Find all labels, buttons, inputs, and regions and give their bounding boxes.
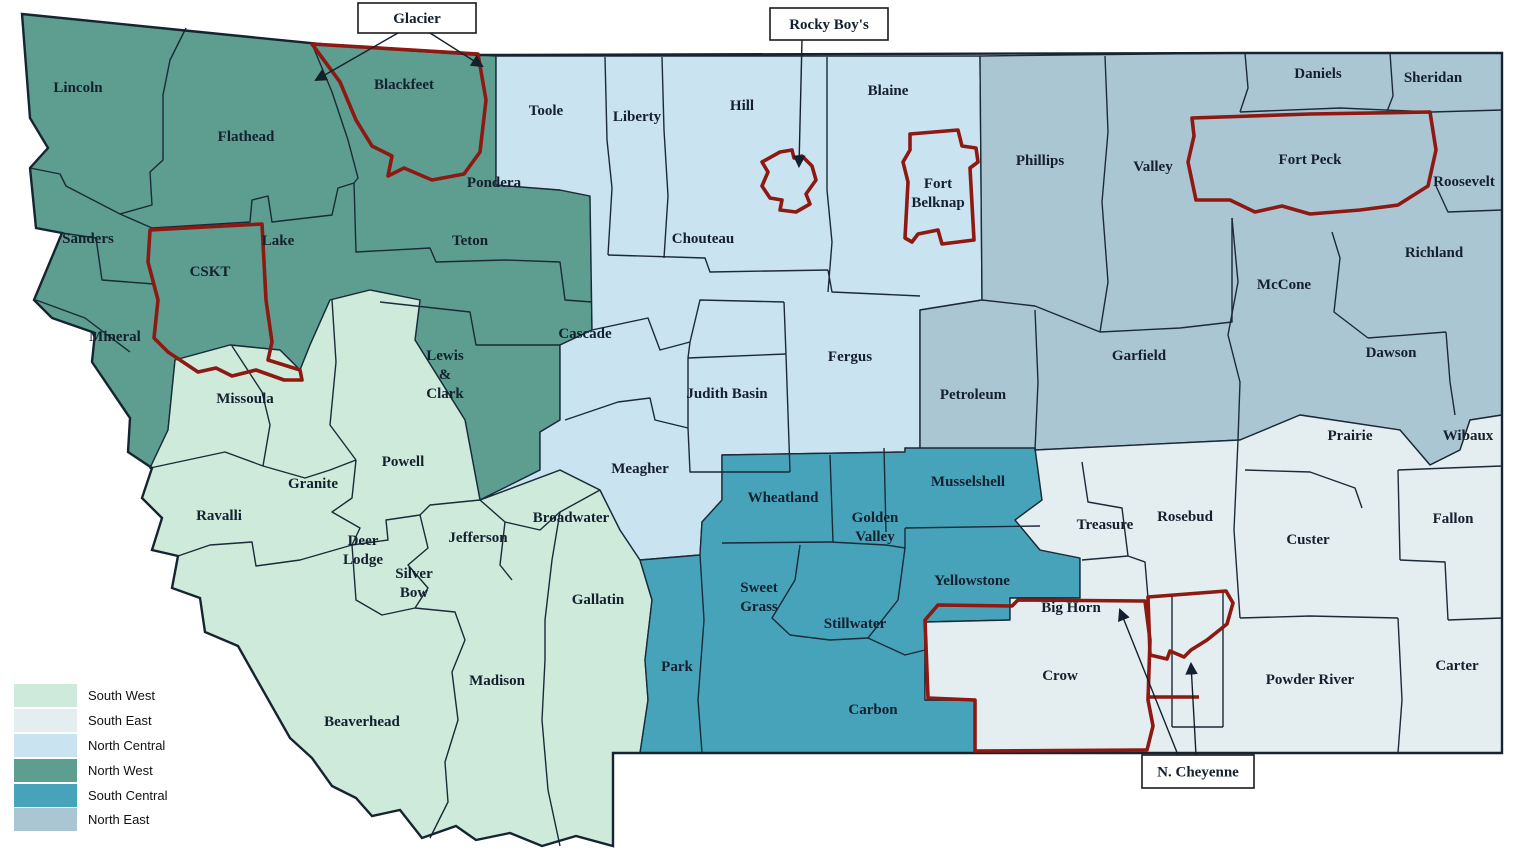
- label-line: Meagher: [611, 461, 669, 477]
- county-label-ravalli: Ravalli: [196, 508, 242, 524]
- label-line: Carbon: [848, 702, 898, 718]
- county-label-wheatland: Wheatland: [748, 490, 820, 506]
- county-label-mineral: Mineral: [89, 329, 141, 345]
- reservation-label-fort-peck: Fort Peck: [1279, 152, 1343, 168]
- label-line: &: [439, 367, 452, 383]
- label-line: Fallon: [1433, 511, 1474, 527]
- label-line: Liberty: [613, 109, 662, 125]
- label-line: Roosevelt: [1433, 174, 1495, 190]
- county-label-phillips: Phillips: [1016, 153, 1065, 169]
- label-line: Belknap: [911, 195, 964, 211]
- label-line: Flathead: [218, 129, 275, 145]
- legend-label: South West: [88, 688, 155, 703]
- county-label-sheridan: Sheridan: [1404, 70, 1463, 86]
- label-line: CSKT: [190, 264, 231, 280]
- label-line: Stillwater: [824, 616, 887, 632]
- legend-label: South East: [88, 713, 152, 728]
- legend-label: South Central: [88, 788, 168, 803]
- county-border-line: [722, 542, 830, 543]
- label-line: Fort: [924, 176, 952, 192]
- county-label-treasure: Treasure: [1077, 517, 1134, 533]
- legend-swatch-south-central: [14, 784, 77, 807]
- label-line: Valley: [855, 529, 895, 545]
- label-line: Powell: [382, 454, 425, 470]
- label-line: Sheridan: [1404, 70, 1463, 86]
- label-line: Dawson: [1366, 345, 1418, 361]
- label-line: Silver: [395, 566, 433, 582]
- county-label-powell: Powell: [382, 454, 425, 470]
- county-label-carbon: Carbon: [848, 702, 898, 718]
- county-label-jefferson: Jefferson: [448, 530, 508, 546]
- legend-swatch-north-east: [14, 808, 77, 831]
- county-label-mccone: McCone: [1257, 277, 1311, 293]
- label-line: Deer: [348, 533, 379, 549]
- callout-label: Glacier: [393, 11, 441, 27]
- county-label-daniels: Daniels: [1294, 66, 1342, 82]
- legend-item: North Central: [14, 734, 165, 757]
- county-label-richland: Richland: [1405, 245, 1464, 261]
- label-line: Golden: [852, 510, 899, 526]
- label-line: Richland: [1405, 245, 1464, 261]
- county-label-fergus: Fergus: [828, 349, 872, 365]
- county-label-blaine: Blaine: [868, 83, 909, 99]
- county-label-beaverhead: Beaverhead: [324, 714, 400, 730]
- county-label-judith-basin: Judith Basin: [686, 386, 768, 402]
- county-label-rosebud: Rosebud: [1157, 509, 1214, 525]
- reservation-label-blackfeet: Blackfeet: [374, 77, 434, 93]
- label-line: Fort Peck: [1279, 152, 1343, 168]
- map-canvas: LincolnFlatheadSandersLakeMineralPondera…: [0, 0, 1516, 853]
- label-line: Wheatland: [748, 490, 820, 506]
- county-label-toole: Toole: [529, 103, 564, 119]
- label-line: Petroleum: [940, 387, 1007, 403]
- reservation-label-cskt: CSKT: [190, 264, 231, 280]
- legend-item: South Central: [14, 784, 168, 807]
- label-line: Sanders: [62, 231, 114, 247]
- label-line: Treasure: [1077, 517, 1134, 533]
- label-line: Park: [661, 659, 693, 675]
- label-line: Carter: [1435, 658, 1479, 674]
- label-line: Gallatin: [572, 592, 625, 608]
- label-line: Lodge: [343, 552, 383, 568]
- montana-regions-map: LincolnFlatheadSandersLakeMineralPondera…: [0, 0, 1516, 853]
- county-label-fallon: Fallon: [1433, 511, 1474, 527]
- county-label-flathead: Flathead: [218, 129, 275, 145]
- label-line: Hill: [730, 98, 754, 114]
- county-label-madison: Madison: [469, 673, 526, 689]
- county-label-pondera: Pondera: [467, 175, 522, 191]
- label-line: Powder River: [1266, 672, 1355, 688]
- reservation-label-crow: Crow: [1042, 668, 1078, 684]
- county-label-teton: Teton: [452, 233, 489, 249]
- label-line: Teton: [452, 233, 489, 249]
- county-label-meagher: Meagher: [611, 461, 669, 477]
- legend-item: North West: [14, 759, 153, 782]
- county-label-park: Park: [661, 659, 693, 675]
- county-label-lincoln: Lincoln: [53, 80, 103, 96]
- county-label-liberty: Liberty: [613, 109, 662, 125]
- label-line: Custer: [1286, 532, 1330, 548]
- county-label-chouteau: Chouteau: [672, 231, 735, 247]
- label-line: McCone: [1257, 277, 1311, 293]
- label-line: Lincoln: [53, 80, 103, 96]
- county-label-roosevelt: Roosevelt: [1433, 174, 1495, 190]
- county-label-gallatin: Gallatin: [572, 592, 625, 608]
- legend-swatch-south-west: [14, 684, 77, 707]
- label-line: Lewis: [426, 348, 464, 364]
- label-line: Mineral: [89, 329, 141, 345]
- legend-label: North Central: [88, 738, 165, 753]
- label-line: Beaverhead: [324, 714, 400, 730]
- county-label-valley: Valley: [1133, 159, 1173, 175]
- label-line: Wibaux: [1443, 428, 1494, 444]
- label-line: Cascade: [558, 326, 612, 342]
- label-line: Broadwater: [533, 510, 610, 526]
- label-line: Big Horn: [1041, 600, 1101, 616]
- county-label-hill: Hill: [730, 98, 754, 114]
- county-label-petroleum: Petroleum: [940, 387, 1007, 403]
- label-line: Crow: [1042, 668, 1078, 684]
- county-label-stillwater: Stillwater: [824, 616, 887, 632]
- label-line: Grass: [740, 599, 778, 615]
- label-line: Blackfeet: [374, 77, 434, 93]
- label-line: Madison: [469, 673, 526, 689]
- county-label-dawson: Dawson: [1366, 345, 1418, 361]
- legend-label: North East: [88, 812, 150, 827]
- legend-swatch-north-central: [14, 734, 77, 757]
- county-label-yellowstone: Yellowstone: [934, 573, 1010, 589]
- label-line: Musselshell: [931, 474, 1005, 490]
- county-label-granite: Granite: [288, 476, 338, 492]
- label-line: Ravalli: [196, 508, 242, 524]
- label-line: Toole: [529, 103, 564, 119]
- county-label-garfield: Garfield: [1112, 348, 1167, 364]
- callout-label: N. Cheyenne: [1157, 765, 1239, 781]
- label-line: Prairie: [1328, 428, 1373, 444]
- label-line: Phillips: [1016, 153, 1065, 169]
- label-line: Rosebud: [1157, 509, 1214, 525]
- label-line: Clark: [426, 386, 464, 402]
- label-line: Yellowstone: [934, 573, 1010, 589]
- legend-item: North East: [14, 808, 150, 831]
- county-label-big-horn: Big Horn: [1041, 600, 1101, 616]
- label-line: Fergus: [828, 349, 872, 365]
- legend-label: North West: [88, 763, 153, 778]
- label-line: Granite: [288, 476, 338, 492]
- legend-item: South East: [14, 709, 152, 732]
- county-label-custer: Custer: [1286, 532, 1330, 548]
- legend-swatch-south-east: [14, 709, 77, 732]
- county-label-lake: Lake: [262, 233, 295, 249]
- label-line: Lake: [262, 233, 295, 249]
- label-line: Chouteau: [672, 231, 735, 247]
- county-label-powder-river: Powder River: [1266, 672, 1355, 688]
- county-label-wibaux: Wibaux: [1443, 428, 1494, 444]
- label-line: Blaine: [868, 83, 909, 99]
- callout-label: Rocky Boy's: [789, 17, 869, 33]
- label-line: Daniels: [1294, 66, 1342, 82]
- county-label-musselshell: Musselshell: [931, 474, 1005, 490]
- label-line: Sweet: [740, 580, 778, 596]
- county-label-sanders: Sanders: [62, 231, 114, 247]
- county-label-prairie: Prairie: [1328, 428, 1373, 444]
- label-line: Valley: [1133, 159, 1173, 175]
- label-line: Pondera: [467, 175, 522, 191]
- label-line: Missoula: [216, 391, 274, 407]
- legend-swatch-north-west: [14, 759, 77, 782]
- county-label-missoula: Missoula: [216, 391, 274, 407]
- county-label-carter: Carter: [1435, 658, 1479, 674]
- label-line: Bow: [400, 585, 429, 601]
- label-line: Garfield: [1112, 348, 1167, 364]
- legend-item: South West: [14, 684, 155, 707]
- label-line: Judith Basin: [686, 386, 768, 402]
- label-line: Jefferson: [448, 530, 508, 546]
- county-label-cascade: Cascade: [558, 326, 612, 342]
- county-label-broadwater: Broadwater: [533, 510, 610, 526]
